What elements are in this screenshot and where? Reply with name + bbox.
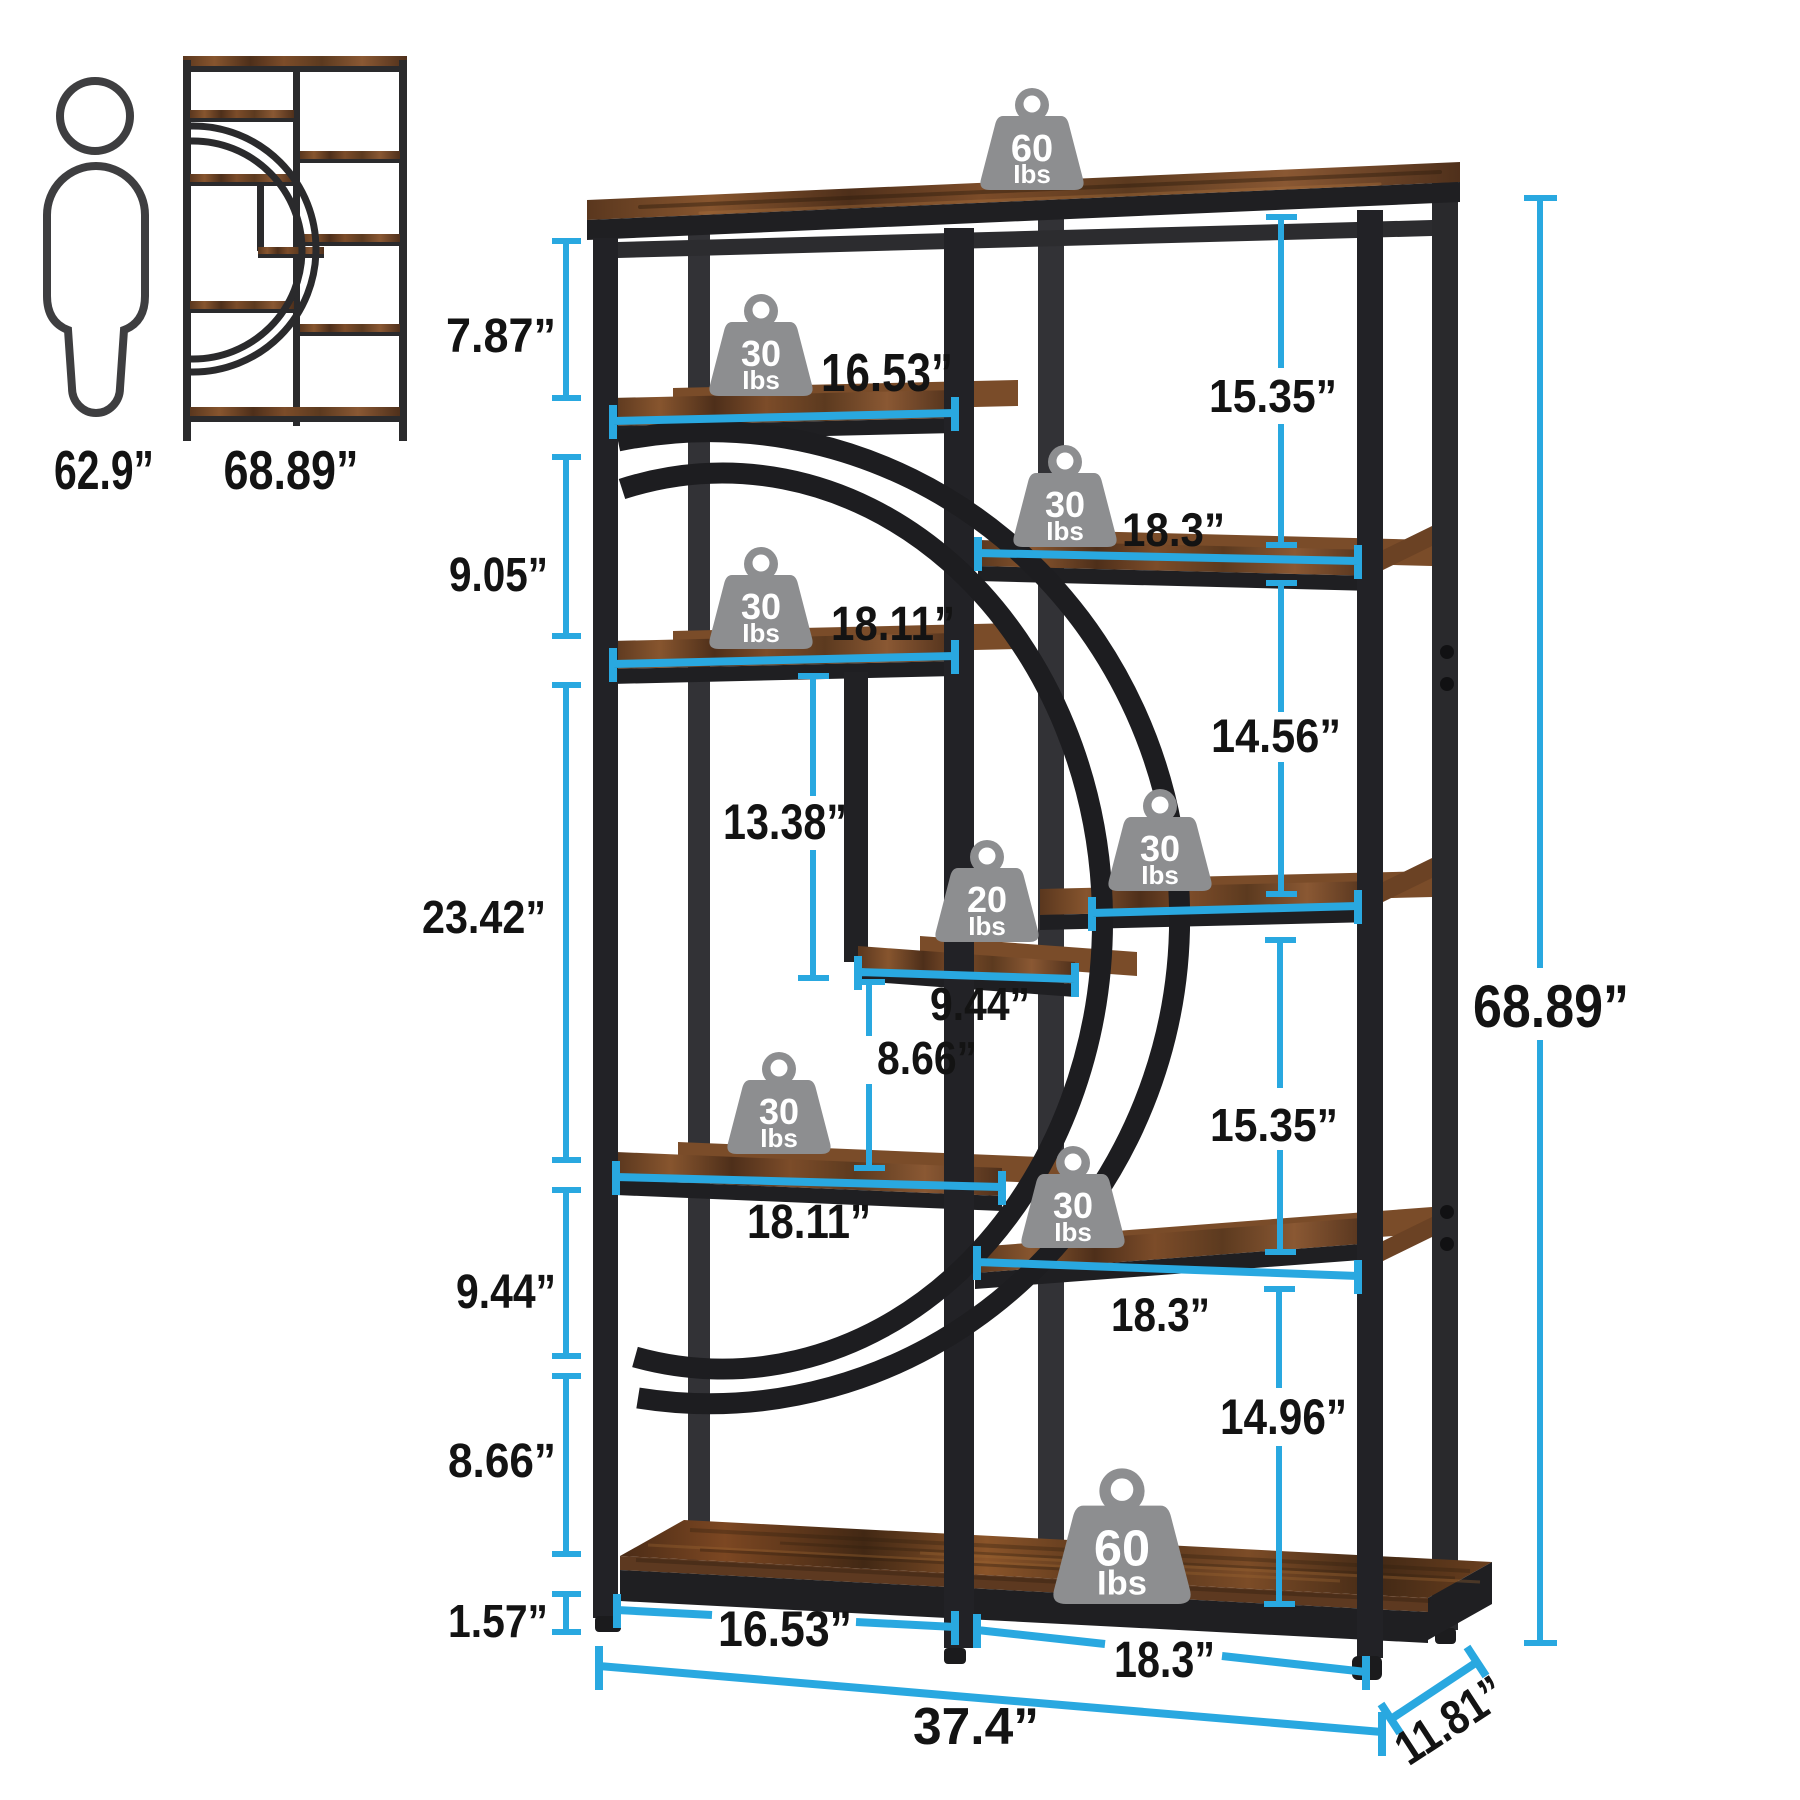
svg-text:8.66”: 8.66” (877, 1032, 977, 1084)
svg-text:Ibs: Ibs (1097, 1565, 1147, 1603)
svg-text:16.53”: 16.53” (821, 343, 953, 403)
svg-text:Ibs: Ibs (742, 618, 780, 648)
svg-text:Ibs: Ibs (1013, 159, 1051, 189)
svg-text:8.66”: 8.66” (448, 1435, 556, 1488)
svg-text:62.9”: 62.9” (54, 439, 154, 501)
svg-text:18.3”: 18.3” (1122, 503, 1225, 556)
svg-text:18.11”: 18.11” (831, 598, 955, 651)
svg-text:68.89”: 68.89” (1473, 973, 1629, 1040)
svg-text:23.42”: 23.42” (422, 891, 546, 943)
svg-text:9.05”: 9.05” (449, 549, 548, 602)
svg-text:13.38”: 13.38” (723, 794, 847, 850)
svg-text:14.96”: 14.96” (1220, 1389, 1347, 1445)
svg-text:1.57”: 1.57” (448, 1595, 548, 1647)
svg-text:18.3”: 18.3” (1114, 1631, 1215, 1688)
svg-text:14.56”: 14.56” (1211, 709, 1341, 762)
svg-text:16.53”: 16.53” (718, 1601, 852, 1657)
svg-text:7.87”: 7.87” (446, 310, 556, 363)
svg-text:18.11”: 18.11” (747, 1196, 871, 1249)
svg-text:Ibs: Ibs (968, 911, 1006, 941)
svg-text:9.44”: 9.44” (456, 1266, 556, 1319)
svg-text:Ibs: Ibs (742, 365, 780, 395)
svg-text:68.89”: 68.89” (224, 439, 359, 501)
svg-text:Ibs: Ibs (1141, 860, 1179, 890)
svg-text:15.35”: 15.35” (1210, 1099, 1338, 1151)
svg-text:Ibs: Ibs (1054, 1217, 1092, 1247)
svg-text:18.3”: 18.3” (1111, 1288, 1210, 1341)
svg-text:Ibs: Ibs (760, 1123, 798, 1153)
svg-text:Ibs: Ibs (1046, 516, 1084, 546)
svg-text:9.44”: 9.44” (930, 978, 1030, 1030)
svg-text:15.35”: 15.35” (1209, 370, 1337, 422)
svg-text:37.4”: 37.4” (913, 1698, 1039, 1756)
